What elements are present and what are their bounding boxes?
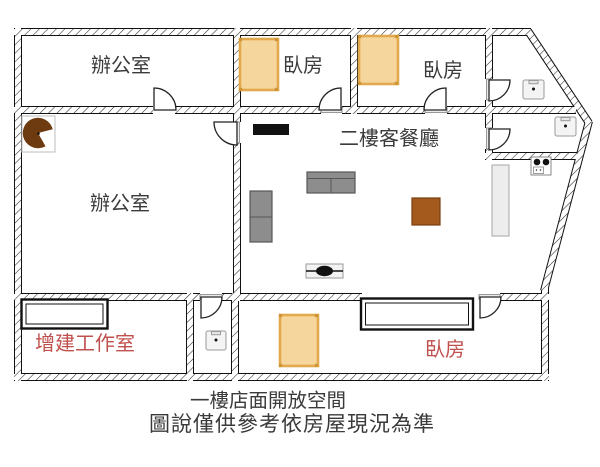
bed [239, 38, 278, 91]
door-arcs [154, 80, 510, 318]
closet [22, 300, 108, 329]
door-arc [480, 297, 501, 318]
room-label-office-top: 辦公室 [91, 53, 151, 77]
bed [358, 35, 398, 85]
floor-plan-page: 辦公室 臥房 臥房 二樓客餐廳 辦公室 增建工作室 臥房 一樓店面開放空間 圖說… [0, 0, 600, 467]
door-arc [424, 88, 446, 110]
room-label-workshop: 增建工作室 [35, 331, 135, 355]
stove [531, 157, 551, 175]
room-label-bedroom-top-2: 臥房 [423, 58, 463, 82]
door-arc [319, 88, 341, 110]
door-arc [489, 129, 510, 150]
room-label-living-dining: 二樓客餐廳 [339, 126, 439, 150]
floor-plan: 辦公室 臥房 臥房 二樓客餐廳 辦公室 增建工作室 臥房 一樓店面開放空間 圖說… [0, 0, 600, 467]
tv-cabinet [253, 124, 289, 135]
room-label-bedroom-bottom: 臥房 [425, 337, 465, 361]
caption-line-2: 圖說僅供參考依房屋現況為準 [149, 412, 435, 436]
sofa-vertical [250, 191, 272, 242]
corner-round-table [22, 116, 55, 152]
sofa-horizontal [307, 172, 355, 193]
square-table [412, 198, 440, 225]
closet [361, 299, 473, 330]
kitchen-counter [492, 165, 509, 236]
door-arc [489, 80, 510, 101]
sink [555, 117, 576, 136]
caption-line-1: 一樓店面開放空間 [190, 389, 346, 412]
room-label-office-main: 辦公室 [90, 191, 150, 215]
sink [523, 80, 544, 99]
room-label-bedroom-top-1: 臥房 [283, 53, 323, 77]
closets [22, 299, 474, 330]
door-arc [214, 122, 237, 145]
ceiling-fixture [306, 264, 343, 278]
door-arc [154, 88, 176, 110]
door-arc [201, 297, 222, 318]
bed [279, 314, 318, 367]
sink [206, 331, 226, 350]
